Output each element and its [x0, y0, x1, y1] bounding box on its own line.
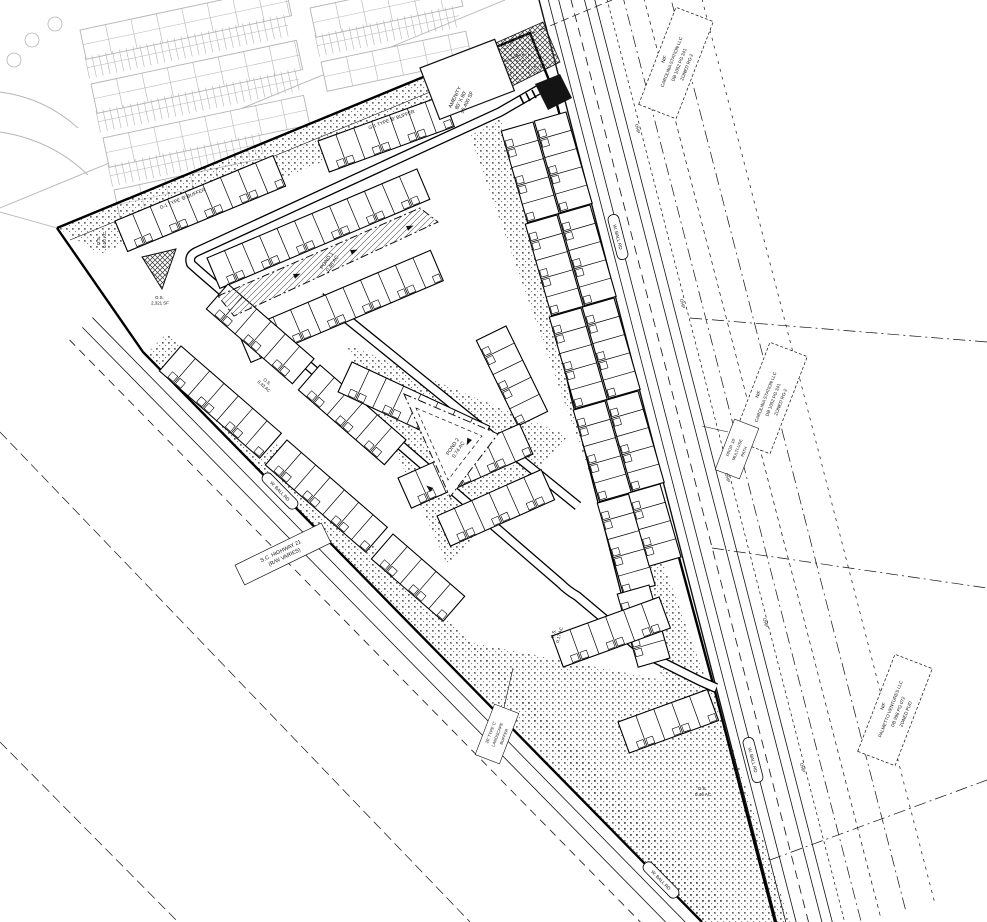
ohp-label: OHP — [634, 123, 641, 134]
os-label-2: O.S. 2,321 SF — [151, 295, 169, 306]
ohp-text: OHP — [634, 123, 641, 134]
owner-box-1: N/F CAROLINA STATION LLC DB 1052 PG 341 … — [639, 7, 714, 118]
site-plan-drawing: AMENITY 80' X 80' ±6,400 SF POND 1 0.48 … — [0, 0, 987, 922]
townhouse-rows — [115, 96, 719, 753]
existing-building — [310, 0, 463, 37]
owner-box-3: N/F PALMETTO VENTURES LLC DB 998 PG 072 … — [858, 654, 933, 765]
ohp-label: OHP — [799, 762, 806, 773]
townhouse-row — [159, 346, 281, 458]
ohp-text: OHP — [679, 298, 686, 309]
ohp-label: OHP — [679, 298, 686, 309]
site-plan-sheet: AMENITY 80' X 80' ±6,400 SF POND 1 0.48 … — [0, 0, 987, 922]
ohp-text: OHP — [724, 472, 731, 483]
ohp-text: OHP — [762, 617, 769, 628]
open-space-stipple — [468, 642, 790, 922]
tree-symbol — [48, 17, 62, 31]
ohp-text: OHP — [799, 762, 806, 773]
road-name-pill: W. BALL RD — [742, 736, 764, 783]
tree-symbol — [25, 33, 39, 47]
svg-text:O.S. 2,321 SF: O.S. 2,321 SF — [151, 295, 169, 306]
ohp-label: OHP — [762, 617, 769, 628]
note-box-1: PROP. 10' MULTI-USE PATH — [715, 419, 759, 479]
hatched-open-space-parcel — [142, 249, 176, 289]
generated-background — [0, 0, 987, 922]
os-label-3: O.S. 0.43 AC — [256, 375, 275, 393]
svg-text:O.S. 0.43 AC: O.S. 0.43 AC — [256, 375, 275, 393]
road-name-pill: W. BALL RD — [607, 213, 629, 260]
ohp-label: OHP — [724, 472, 731, 483]
tree-symbol — [7, 53, 21, 67]
